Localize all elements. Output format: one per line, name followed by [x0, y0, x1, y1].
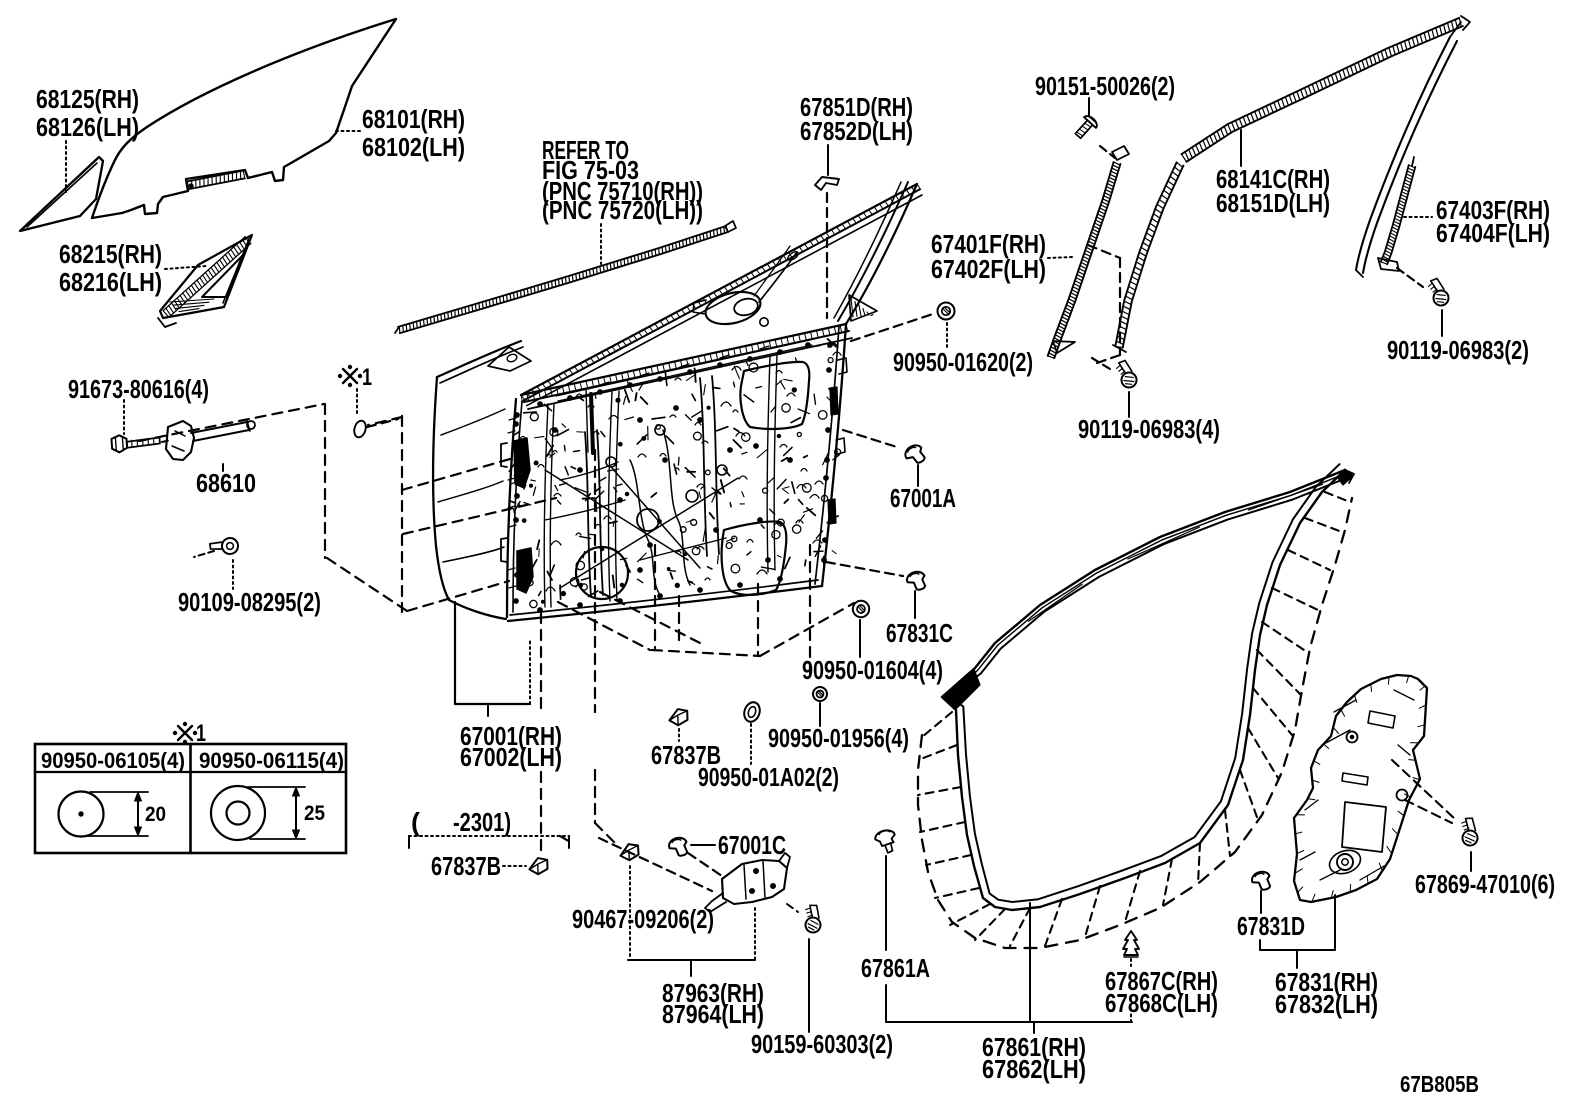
- svg-text:68101(RH): 68101(RH): [362, 106, 465, 134]
- svg-text:20: 20: [145, 803, 166, 826]
- svg-text:68102(LH): 68102(LH): [362, 134, 465, 162]
- svg-text:90159-60303(2): 90159-60303(2): [751, 1031, 893, 1059]
- svg-text:68125(RH): 68125(RH): [36, 86, 139, 114]
- svg-text:90950-06105(4): 90950-06105(4): [41, 748, 185, 773]
- svg-text:67869-47010(6): 67869-47010(6): [1415, 871, 1555, 899]
- svg-text:68126(LH): 68126(LH): [36, 114, 139, 142]
- svg-text:90119-06983(4): 90119-06983(4): [1078, 416, 1220, 444]
- svg-text:25: 25: [304, 802, 325, 825]
- svg-text:67861A: 67861A: [861, 955, 930, 983]
- svg-text:67837B: 67837B: [651, 742, 721, 770]
- svg-text:1: 1: [196, 720, 206, 747]
- svg-text:67832(LH): 67832(LH): [1275, 991, 1378, 1019]
- svg-text:67837B: 67837B: [431, 853, 501, 881]
- svg-text:(: (: [411, 809, 421, 837]
- svg-text:67B805B: 67B805B: [1400, 1071, 1479, 1097]
- svg-text:67001A: 67001A: [890, 485, 956, 513]
- svg-text:67002(LH): 67002(LH): [460, 744, 562, 772]
- svg-text:68216(LH): 68216(LH): [59, 269, 162, 297]
- svg-text:67831D: 67831D: [1237, 913, 1305, 941]
- svg-text:-2301): -2301): [453, 809, 511, 837]
- svg-text:1: 1: [362, 364, 372, 391]
- svg-text:87964(LH): 87964(LH): [662, 1001, 764, 1029]
- svg-text:90950-06115(4): 90950-06115(4): [199, 748, 344, 773]
- svg-text:90467-09206(2): 90467-09206(2): [572, 906, 714, 934]
- svg-text:67862(LH): 67862(LH): [982, 1056, 1086, 1084]
- svg-text:68151D(LH): 68151D(LH): [1216, 190, 1330, 218]
- svg-text:68215(RH): 68215(RH): [59, 241, 162, 269]
- svg-text:67404F(LH): 67404F(LH): [1436, 220, 1550, 248]
- svg-text:90151-50026(2): 90151-50026(2): [1035, 73, 1175, 101]
- svg-text:90119-06983(2): 90119-06983(2): [1387, 337, 1529, 365]
- svg-text:90109-08295(2): 90109-08295(2): [178, 589, 321, 617]
- svg-text:67831C: 67831C: [886, 620, 953, 648]
- svg-text:67868C(LH): 67868C(LH): [1105, 990, 1218, 1018]
- svg-text:67401F(RH): 67401F(RH): [931, 231, 1046, 259]
- svg-text:67852D(LH): 67852D(LH): [800, 118, 913, 146]
- svg-text:90950-01956(4): 90950-01956(4): [768, 725, 909, 753]
- svg-text:67001C: 67001C: [718, 832, 786, 860]
- svg-text:(PNC 75720(LH)): (PNC 75720(LH)): [542, 197, 703, 225]
- svg-text:91673-80616(4): 91673-80616(4): [68, 376, 209, 404]
- svg-text:68610: 68610: [196, 470, 256, 498]
- svg-text:90950-01620(2): 90950-01620(2): [893, 349, 1033, 377]
- svg-text:67402F(LH): 67402F(LH): [931, 256, 1046, 284]
- svg-text:90950-01604(4): 90950-01604(4): [802, 657, 943, 685]
